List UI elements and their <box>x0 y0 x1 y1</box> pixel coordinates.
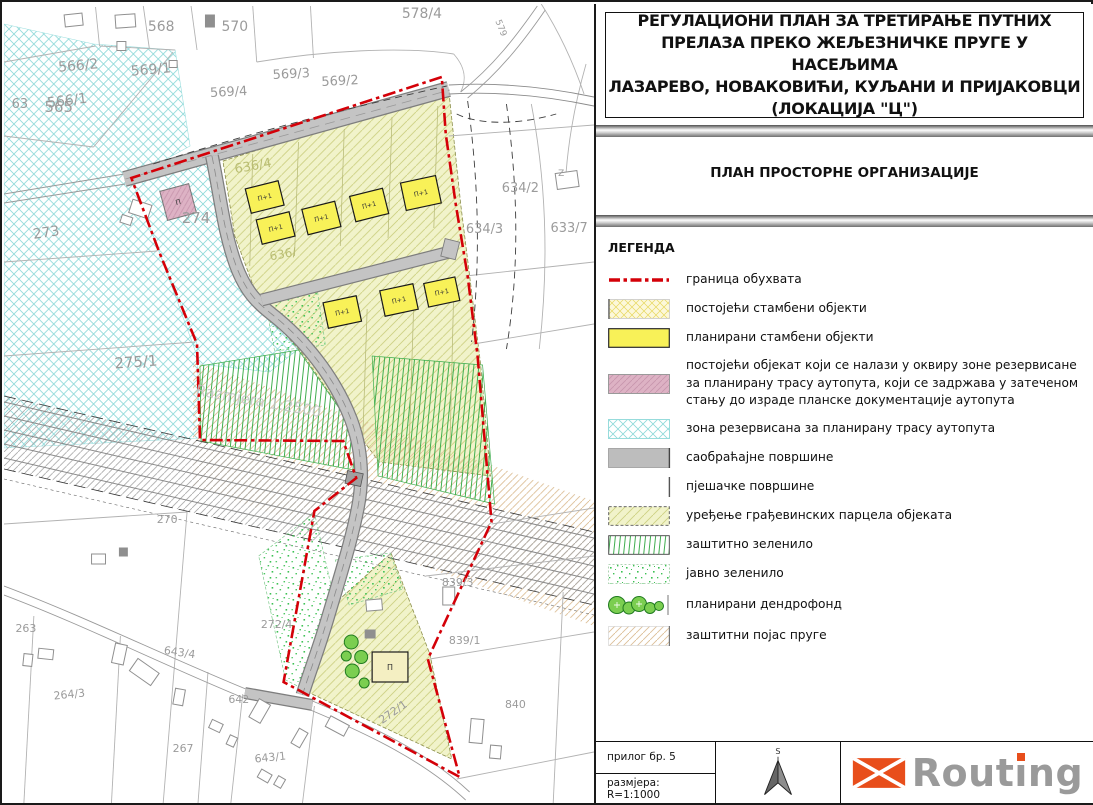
parcel-number: 839/3 <box>442 576 474 589</box>
house <box>115 14 136 28</box>
plan-subtitle: ПЛАН ПРОСТОРНЕ ОРГАНИЗАЦИЈЕ <box>596 165 1093 181</box>
parcel-arrangement-swatch-icon <box>608 506 670 526</box>
legend-item-traffic-surfaces: саобраћајне површине <box>608 448 1087 468</box>
parcel-number: 569/3 <box>272 66 310 83</box>
legend-label: планирани стамбени објекти <box>686 329 874 347</box>
house <box>92 554 106 564</box>
parcel-number: 633/7 <box>551 221 588 236</box>
tree <box>341 651 351 661</box>
title-line-2: ПРЕЛАЗА ПРЕКО ЖЕЉЕЗНИЧКЕ ПРУГЕ У НАСЕЉИМ… <box>606 32 1083 76</box>
house <box>38 648 54 660</box>
parcel-number: 578/4 <box>402 6 442 22</box>
svg-text:П: П <box>387 663 393 672</box>
tree <box>359 678 369 688</box>
parcel-number: 275/1 <box>114 351 158 372</box>
existing-residential-swatch-icon <box>608 299 670 319</box>
north-arrow-cell: S <box>716 742 841 804</box>
legend-label: зона резервисана за планирану трасу ауто… <box>686 420 995 438</box>
north-arrow-icon: S <box>755 746 801 800</box>
reserved-zone-swatch-icon <box>608 419 670 439</box>
legend-item-parcel-arrangement: уређење грађевинских парцела објеката <box>608 506 1087 526</box>
legend-label: јавно зеленило <box>686 565 784 583</box>
plan-sheet: П+1П+1П+1П+1П+1П+1П+1П+1ПП 565566/2569/1… <box>0 0 1093 805</box>
house <box>173 688 186 705</box>
planned-dendrofund-swatch-icon <box>608 593 670 617</box>
legend-item-planned-residential: планирани стамбени објекти <box>608 328 1087 348</box>
attachment-number: прилог бр. 5 <box>596 742 715 774</box>
parcel-number: 270 <box>157 513 178 526</box>
legend-label: постојећи објекат који се налази у оквир… <box>686 357 1087 410</box>
parcel-number: 63 <box>12 97 28 112</box>
plan-map[interactable]: П+1П+1П+1П+1П+1П+1П+1П+1ПП 565566/2569/1… <box>4 4 594 803</box>
plan-title: РЕГУЛАЦИОНИ ПЛАН ЗА ТРЕТИРАЊЕ ПУТНИХ ПРЕ… <box>605 12 1084 118</box>
legend-label: граница обухвата <box>686 271 802 289</box>
parcel-number: 634/3 <box>466 222 503 237</box>
title-line-1: РЕГУЛАЦИОНИ ПЛАН ЗА ТРЕТИРАЊЕ ПУТНИХ <box>606 10 1083 32</box>
parcel-number: 642 <box>228 693 249 706</box>
house <box>365 630 375 638</box>
routing-logo-icon <box>851 754 907 792</box>
legend-item-existing-residential: постојећи стамбени објекти <box>608 299 1087 319</box>
legend-label: уређење грађевинских парцела објеката <box>686 507 952 525</box>
legend-item-public-greenery: јавно зеленило <box>608 564 1087 584</box>
railway-belt-swatch-icon <box>608 626 670 646</box>
map-area: П+1П+1П+1П+1П+1П+1П+1П+1ПП 565566/2569/1… <box>4 4 596 803</box>
house <box>469 718 484 743</box>
scale-label: размјера: R=1:1000 <box>596 774 715 805</box>
pedestrian-surfaces-swatch-icon <box>608 477 670 497</box>
parcel-number: 267 <box>173 742 194 755</box>
parcel-number: 272/4 <box>261 618 293 631</box>
legend-item-reserved-zone: зона резервисана за планирану трасу ауто… <box>608 419 1087 439</box>
traffic-surfaces-swatch-icon <box>608 448 670 468</box>
title-line-4: (ЛОКАЦИЈА "Ц") <box>606 98 1083 120</box>
parcel-number: 839/1 <box>449 634 481 647</box>
house <box>64 13 83 27</box>
parcel-number: 263 <box>15 622 36 635</box>
parcel-number: Z <box>558 169 564 179</box>
separator-bar <box>596 125 1093 137</box>
legend-item-planned-dendrofund: планирани дендрофонд <box>608 593 1087 617</box>
house <box>366 599 383 611</box>
legend-label: саобраћајне површине <box>686 449 833 467</box>
title-block-footer: прилог бр. 5 размјера: R=1:1000 S Routın… <box>596 741 1093 804</box>
tree <box>344 635 358 649</box>
routing-logo-text: Routıng <box>912 754 1083 792</box>
logo-letter-i: ı <box>1014 754 1028 792</box>
legend-label: планирани дендрофонд <box>686 596 842 614</box>
parcel-number: 569/2 <box>321 73 359 90</box>
legend-item-pedestrian-surfaces: пјешачке површине <box>608 477 1087 497</box>
legend-label: заштитни појас пруге <box>686 627 827 645</box>
legend-label: заштитно зеленило <box>686 536 813 554</box>
house <box>117 42 126 51</box>
planned-residential-swatch-icon <box>608 328 670 348</box>
north-label: S <box>775 746 780 756</box>
house <box>119 548 127 556</box>
footer-text-cell: прилог бр. 5 размјера: R=1:1000 <box>596 742 716 804</box>
parcel-number: 570 <box>222 19 249 35</box>
parcel-number: 840 <box>505 698 526 711</box>
legend-item-railway-protection-belt: заштитни појас пруге <box>608 626 1087 646</box>
legend-header: ЛЕГЕНДА <box>608 240 1087 255</box>
legend-item-existing-object-reserved-zone: постојећи објекат који се налази у оквир… <box>608 357 1087 410</box>
existing-building: П <box>372 652 408 682</box>
legend-label: пјешачке површине <box>686 478 814 496</box>
existing-object-swatch-icon <box>608 374 670 394</box>
parcel-number: 274 <box>182 209 210 227</box>
house <box>23 654 33 667</box>
parcel-number: 634/2 <box>502 181 539 196</box>
tree <box>345 664 359 678</box>
parcel-number: 569/4 <box>210 84 248 101</box>
title-line-3: ЛАЗАРЕВО, НОВАКОВИЋИ, КУЉАНИ И ПРИЈАКОВЦ… <box>606 76 1083 98</box>
legend: ЛЕГЕНДА граница обухвата постојећи стамб… <box>608 240 1087 655</box>
info-panel: РЕГУЛАЦИОНИ ПЛАН ЗА ТРЕТИРАЊЕ ПУТНИХ ПРЕ… <box>596 4 1093 803</box>
public-greenery-swatch-icon <box>608 564 670 584</box>
boundary-swatch-icon <box>608 270 670 290</box>
house <box>205 15 214 27</box>
routing-logo: Routıng <box>841 742 1093 804</box>
parcel-number: 568 <box>148 19 175 35</box>
separator-bar <box>596 215 1093 227</box>
legend-item-protective-greenery: заштитно зеленило <box>608 535 1087 555</box>
tree <box>355 651 368 664</box>
legend-item-boundary: граница обухвата <box>608 270 1087 290</box>
legend-label: постојећи стамбени објекти <box>686 300 867 318</box>
protective-greenery-swatch-icon <box>608 535 670 555</box>
house <box>489 745 501 759</box>
